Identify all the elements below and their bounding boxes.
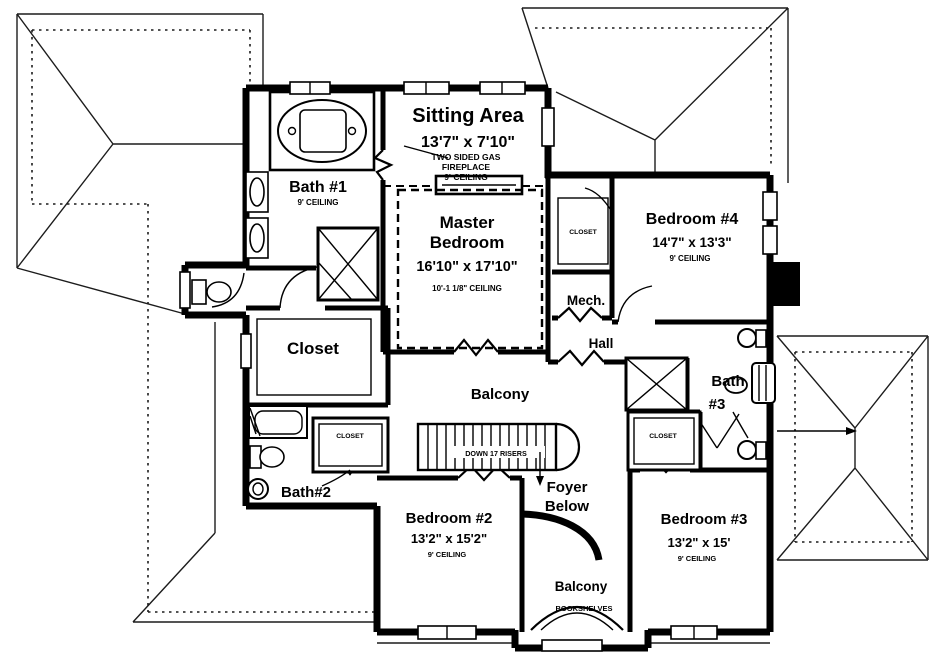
roof-top-left xyxy=(17,14,263,314)
label-master-dims: 16'10" x 17'10" xyxy=(416,259,517,275)
shower-bath1 xyxy=(318,228,378,300)
sink-bath2 xyxy=(248,479,268,499)
label-master-ceiling: 10'-1 1/8" CEILING xyxy=(432,284,502,293)
label-closet2: CLOSET xyxy=(336,433,364,440)
label-sitting-dims: 13'7" x 7'10" xyxy=(421,134,515,151)
label-bedroom3-name: Bedroom #3 xyxy=(661,511,748,528)
label-bath2: Bath#2 xyxy=(281,484,331,501)
label-bath1-ceiling: 9' CEILING xyxy=(297,198,338,207)
label-bedroom4-name: Bedroom #4 xyxy=(646,211,739,228)
label-sitting-note1: TWO SIDED GAS xyxy=(432,152,501,162)
floor-plan-drawing: Sitting Area 13'7" x 7'10" TWO SIDED GAS… xyxy=(0,0,937,664)
label-closet4: CLOSET xyxy=(569,229,597,236)
label-sitting-note3: 9' CEILING xyxy=(444,172,488,182)
label-bedroom2-dims: 13'2" x 15'2" xyxy=(411,531,487,546)
door-zigzag-sitting-bath1 xyxy=(375,150,391,180)
label-master-closet: Closet xyxy=(287,339,339,358)
window xyxy=(763,226,777,254)
label-sitting-note2: FIREPLACE xyxy=(442,162,491,172)
label-foyer-line1: Foyer xyxy=(547,479,588,496)
toilet-bath3-upper xyxy=(738,329,766,347)
label-bedroom2-name: Bedroom #2 xyxy=(406,510,493,527)
chimney-block xyxy=(770,262,800,306)
leader-bath3 xyxy=(733,412,748,438)
closet-door-gap xyxy=(280,302,325,313)
label-bookshelves: BOOKSHELVES xyxy=(556,604,613,613)
label-balcony: Balcony xyxy=(471,386,530,403)
roof-right xyxy=(777,336,928,560)
label-stairs-note: DOWN 17 RISERS xyxy=(465,449,527,458)
curved-rail-wall xyxy=(522,514,599,560)
label-bedroom3-ceiling: 9' CEILING xyxy=(678,554,717,563)
door-zigzag-mech xyxy=(558,308,602,321)
label-bedroom2-ceiling: 9' CEILING xyxy=(428,550,467,559)
label-bedroom4-ceiling: 9' CEILING xyxy=(669,254,710,263)
roof-top-right xyxy=(522,8,788,183)
toilet-bath3-lower xyxy=(738,441,766,459)
label-bedroom4-dims: 14'7" x 13'3" xyxy=(652,235,731,250)
label-hall: Hall xyxy=(589,336,614,351)
window xyxy=(763,192,777,220)
label-closet3: CLOSET xyxy=(649,433,677,440)
closet3-box xyxy=(628,412,700,470)
label-master-name1: Master xyxy=(440,213,495,232)
floor-plan-canvas: Sitting Area 13'7" x 7'10" TWO SIDED GAS… xyxy=(0,0,937,664)
garden-tub xyxy=(270,92,374,170)
label-balcony-lower: Balcony xyxy=(555,579,608,594)
window xyxy=(542,640,602,651)
label-bath1-name: Bath #1 xyxy=(289,179,347,196)
closet2-box xyxy=(313,418,388,472)
label-master-name2: Bedroom xyxy=(430,233,505,252)
toilet-bath2 xyxy=(250,446,284,468)
tub-bath3 xyxy=(752,363,775,403)
door-zigzag-hall xyxy=(558,351,604,365)
label-mech: Mech. xyxy=(567,293,605,308)
label-sitting-name: Sitting Area xyxy=(412,105,524,127)
window xyxy=(542,108,554,146)
tub-bath2 xyxy=(249,406,307,438)
label-bedroom3-dims: 13'2" x 15' xyxy=(668,535,731,550)
label-bath3-line2: #3 xyxy=(709,396,726,413)
toilet-water-closet xyxy=(192,280,231,304)
label-foyer-line2: Below xyxy=(545,498,590,515)
shower-bath3 xyxy=(626,358,687,410)
label-bath3-line1: Bath xyxy=(711,373,744,390)
stairs-down-arrow xyxy=(536,476,544,486)
window xyxy=(241,334,251,368)
window xyxy=(180,272,190,308)
